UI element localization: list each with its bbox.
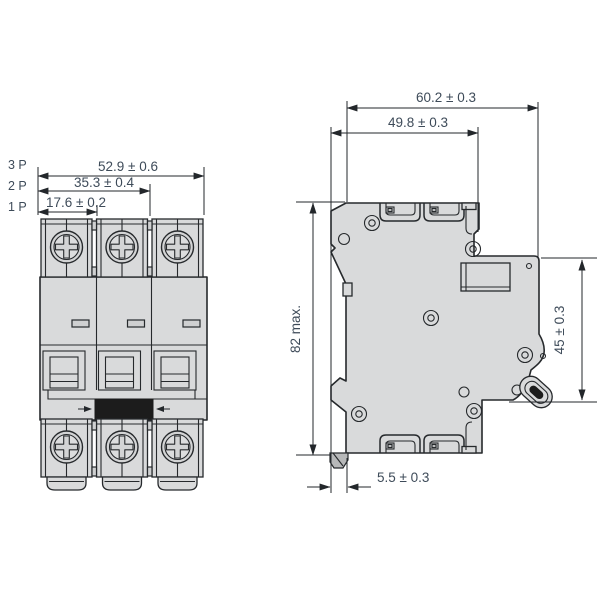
- front-view: 3 P 2 P 1 P 52.9 ± 0.6 35.3 ± 0.4 17.6 ±…: [8, 158, 207, 490]
- side-view: 60.2 ± 0.3 49.8 ± 0.3 82 max. 45 ± 0.3 5…: [288, 90, 597, 493]
- dim-width-2p-label: 35.3 ± 0.4: [74, 175, 134, 190]
- dim-width-1p: 17.6 ± 0.2: [38, 195, 106, 216]
- dim-rail-clip-offset: 5.5 ± 0.3: [307, 470, 429, 487]
- dim-width-3p-label: 52.9 ± 0.6: [98, 159, 158, 174]
- technical-drawing-page: 3 P 2 P 1 P 52.9 ± 0.6 35.3 ± 0.4 17.6 ±…: [0, 0, 604, 604]
- side-label-window: [461, 263, 510, 291]
- dim-body-depth: 49.8 ± 0.3: [331, 115, 478, 133]
- technical-drawing: 3 P 2 P 1 P 52.9 ± 0.6 35.3 ± 0.4 17.6 ±…: [0, 0, 604, 604]
- front-feet: [47, 477, 197, 490]
- bottom-tab: [462, 447, 476, 454]
- pole-label-1p: 1 P: [8, 200, 27, 214]
- dim-total-depth-label: 60.2 ± 0.3: [416, 90, 476, 105]
- dim-front-height: 45 ± 0.3: [552, 260, 582, 400]
- toggle-handle-bar: [95, 399, 153, 419]
- front-top-terminals: [41, 219, 203, 277]
- dim-width-1p-label: 17.6 ± 0.2: [46, 195, 106, 210]
- din-clip-tab: [330, 453, 348, 468]
- dim-height-label: 82 max.: [288, 305, 303, 353]
- dim-body-depth-label: 49.8 ± 0.3: [388, 115, 448, 130]
- pole-label-3p: 3 P: [8, 158, 27, 172]
- dim-front-height-label: 45 ± 0.3: [552, 306, 567, 355]
- dim-total-depth: 60.2 ± 0.3: [347, 90, 538, 108]
- pole-label-2p: 2 P: [8, 179, 27, 193]
- dim-rail-clip-offset-label: 5.5 ± 0.3: [377, 470, 429, 485]
- left-edge-tab: [343, 283, 352, 296]
- top-tab: [462, 203, 476, 210]
- dim-height: 82 max.: [288, 203, 313, 455]
- front-bottom-terminals: [41, 419, 203, 477]
- side-body: [331, 203, 544, 453]
